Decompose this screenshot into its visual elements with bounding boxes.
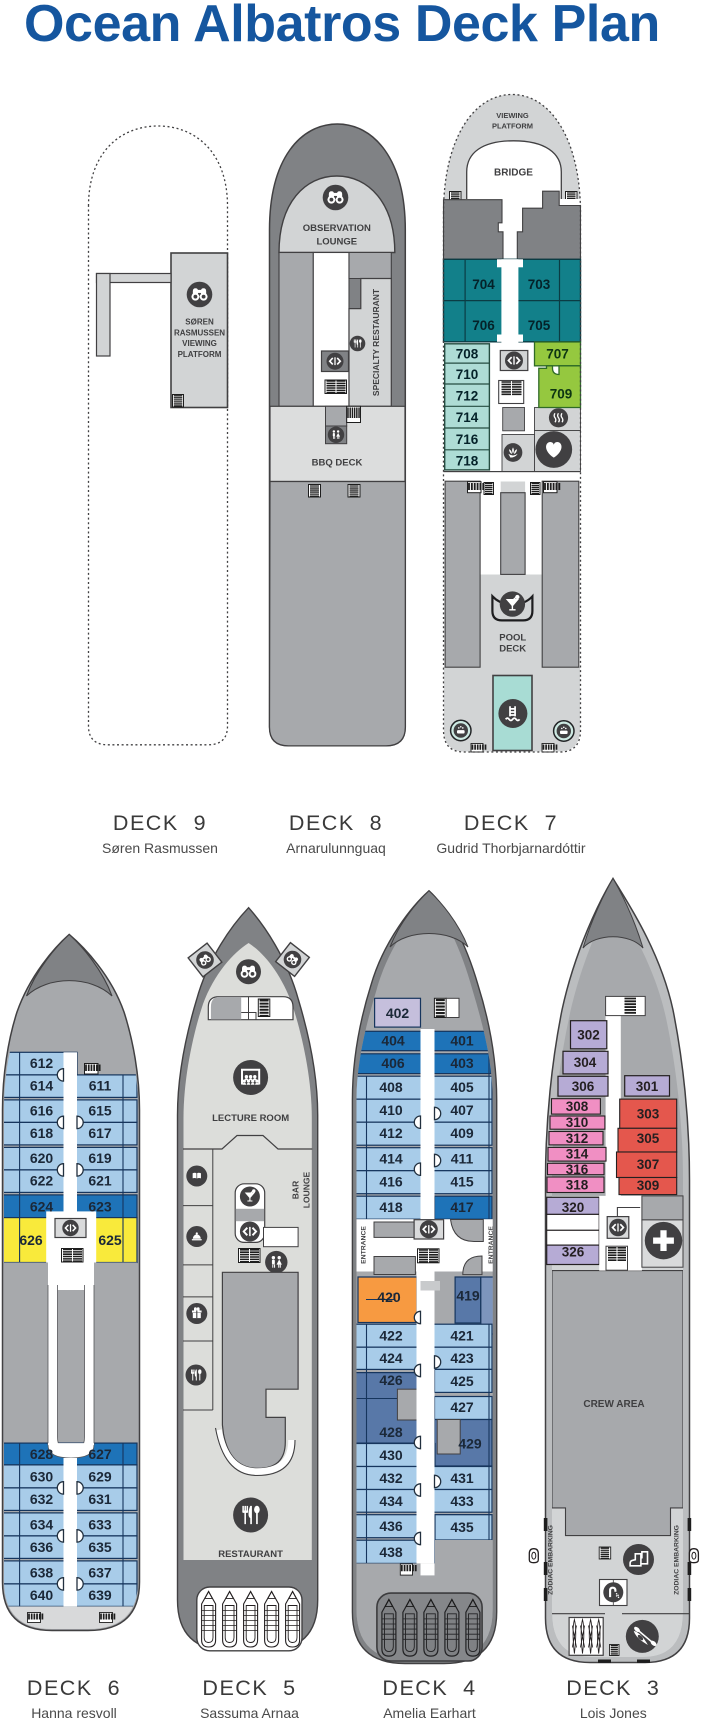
svg-text:624: 624: [30, 1198, 54, 1214]
svg-text:420: 420: [377, 1289, 401, 1305]
svg-text:LOUNGE: LOUNGE: [302, 1171, 312, 1208]
svg-text:432: 432: [379, 1470, 403, 1486]
svg-text:DECK 4: DECK 4: [382, 1676, 476, 1700]
svg-text:629: 629: [88, 1468, 112, 1484]
svg-text:411: 411: [451, 1151, 474, 1167]
svg-text:427: 427: [450, 1399, 474, 1415]
svg-text:617: 617: [88, 1125, 112, 1141]
svg-text:703: 703: [528, 277, 551, 292]
svg-text:708: 708: [456, 347, 479, 362]
svg-text:429: 429: [458, 1436, 482, 1452]
svg-text:Søren Rasmussen: Søren Rasmussen: [102, 840, 218, 856]
svg-text:419: 419: [456, 1288, 480, 1304]
svg-text:426: 426: [379, 1372, 403, 1388]
svg-text:621: 621: [88, 1172, 112, 1188]
svg-text:705: 705: [528, 318, 551, 333]
svg-text:423: 423: [450, 1350, 474, 1366]
svg-text:631: 631: [88, 1491, 112, 1507]
svg-text:428: 428: [379, 1424, 403, 1440]
svg-text:316: 316: [566, 1162, 589, 1177]
svg-text:318: 318: [566, 1178, 589, 1193]
svg-text:425: 425: [450, 1373, 474, 1389]
svg-text:BRIDGE: BRIDGE: [494, 168, 533, 179]
svg-text:424: 424: [379, 1350, 403, 1366]
svg-text:309: 309: [637, 1178, 660, 1193]
svg-text:430: 430: [379, 1447, 403, 1463]
svg-text:ZODIAC EMBARKING: ZODIAC EMBARKING: [548, 1525, 555, 1595]
svg-text:402: 402: [386, 1005, 410, 1021]
svg-text:406: 406: [381, 1055, 405, 1071]
svg-text:Sassuma Arnaa: Sassuma Arnaa: [200, 1705, 299, 1721]
svg-text:434: 434: [379, 1493, 403, 1509]
svg-text:421: 421: [450, 1328, 474, 1344]
svg-text:Amelia Earhart: Amelia Earhart: [383, 1705, 476, 1721]
svg-text:616: 616: [30, 1102, 54, 1118]
svg-text:BBQ DECK: BBQ DECK: [312, 458, 363, 469]
svg-text:438: 438: [379, 1544, 403, 1560]
svg-text:DECK 5: DECK 5: [202, 1676, 296, 1700]
svg-text:716: 716: [456, 432, 479, 447]
svg-text:612: 612: [30, 1055, 54, 1071]
svg-text:435: 435: [450, 1519, 474, 1535]
svg-text:433: 433: [450, 1493, 474, 1509]
svg-text:618: 618: [30, 1125, 54, 1141]
svg-text:ENTRANCE: ENTRANCE: [361, 1226, 368, 1264]
svg-text:614: 614: [30, 1077, 54, 1093]
svg-text:Hanna resvoll: Hanna resvoll: [31, 1705, 117, 1721]
svg-text:Gudrid Thorbjarnardóttir: Gudrid Thorbjarnardóttir: [436, 840, 585, 856]
svg-text:DECK 3: DECK 3: [566, 1676, 660, 1700]
svg-text:611: 611: [89, 1077, 112, 1093]
svg-text:OBSERVATION: OBSERVATION: [303, 223, 371, 234]
svg-text:633: 633: [88, 1516, 112, 1532]
svg-text:ZODIAC EMBARKING: ZODIAC EMBARKING: [674, 1525, 681, 1595]
svg-text:DECK 9: DECK 9: [113, 811, 207, 835]
svg-text:410: 410: [379, 1102, 403, 1118]
svg-text:301: 301: [636, 1079, 659, 1094]
svg-text:POOL: POOL: [499, 633, 526, 644]
svg-text:707: 707: [546, 347, 569, 362]
svg-text:627: 627: [88, 1446, 112, 1462]
svg-text:SØREN: SØREN: [185, 318, 214, 327]
svg-text:314: 314: [566, 1147, 589, 1162]
svg-text:DECK 7: DECK 7: [464, 811, 558, 835]
svg-text:634: 634: [30, 1516, 54, 1532]
svg-text:308: 308: [566, 1099, 589, 1114]
svg-text:704: 704: [472, 277, 495, 292]
svg-text:VIEWING: VIEWING: [496, 111, 529, 120]
svg-text:625: 625: [98, 1232, 122, 1248]
svg-text:303: 303: [637, 1107, 660, 1122]
svg-text:638: 638: [30, 1564, 54, 1580]
svg-text:PLATFORM: PLATFORM: [492, 122, 533, 131]
svg-text:407: 407: [450, 1102, 474, 1118]
svg-text:417: 417: [450, 1199, 474, 1215]
svg-text:636: 636: [30, 1539, 54, 1555]
svg-text:403: 403: [450, 1055, 474, 1071]
svg-text:RESTAURANT: RESTAURANT: [218, 1549, 283, 1560]
svg-text:LECTURE ROOM: LECTURE ROOM: [212, 1113, 289, 1124]
svg-text:BAR: BAR: [291, 1181, 301, 1199]
svg-text:640: 640: [30, 1587, 54, 1603]
svg-text:632: 632: [30, 1491, 54, 1507]
svg-text:307: 307: [637, 1157, 660, 1172]
svg-text:408: 408: [379, 1079, 403, 1095]
svg-text:405: 405: [450, 1079, 474, 1095]
svg-text:302: 302: [577, 1028, 600, 1043]
svg-text:409: 409: [450, 1125, 474, 1141]
svg-text:706: 706: [472, 318, 495, 333]
svg-text:712: 712: [456, 389, 479, 404]
svg-text:326: 326: [562, 1245, 585, 1260]
svg-text:639: 639: [88, 1587, 112, 1603]
svg-text:619: 619: [88, 1150, 112, 1166]
svg-text:718: 718: [456, 454, 479, 469]
svg-text:714: 714: [456, 410, 479, 425]
svg-text:630: 630: [30, 1468, 54, 1484]
svg-text:DECK: DECK: [499, 644, 526, 655]
svg-text:DECK 6: DECK 6: [27, 1676, 121, 1700]
svg-text:418: 418: [379, 1199, 403, 1215]
svg-text:416: 416: [379, 1174, 403, 1190]
svg-text:637: 637: [88, 1564, 112, 1580]
svg-text:635: 635: [88, 1539, 112, 1555]
svg-text:320: 320: [562, 1200, 585, 1215]
svg-text:709: 709: [550, 387, 573, 402]
svg-text:VIEWING: VIEWING: [182, 339, 217, 348]
svg-text:DECK 8: DECK 8: [289, 811, 383, 835]
svg-text:PLATFORM: PLATFORM: [178, 350, 222, 359]
svg-text:626: 626: [19, 1232, 43, 1248]
svg-text:422: 422: [379, 1328, 403, 1344]
svg-text:SPECIALTY RESTAURANT: SPECIALTY RESTAURANT: [371, 288, 381, 396]
svg-text:615: 615: [88, 1102, 112, 1118]
svg-text:LOUNGE: LOUNGE: [316, 237, 357, 248]
svg-text:304: 304: [574, 1055, 597, 1070]
svg-text:623: 623: [88, 1198, 112, 1214]
svg-text:Arnarulunnguaq: Arnarulunnguaq: [286, 840, 386, 856]
svg-text:710: 710: [456, 367, 479, 382]
svg-text:415: 415: [450, 1174, 474, 1190]
svg-text:436: 436: [379, 1518, 403, 1534]
svg-text:620: 620: [30, 1150, 54, 1166]
svg-text:431: 431: [450, 1470, 474, 1486]
svg-text:412: 412: [379, 1125, 403, 1141]
svg-text:310: 310: [566, 1115, 589, 1130]
svg-text:306: 306: [572, 1079, 595, 1094]
svg-text:622: 622: [30, 1172, 54, 1188]
svg-text:312: 312: [566, 1131, 589, 1146]
svg-text:628: 628: [30, 1446, 54, 1462]
svg-text:404: 404: [381, 1033, 405, 1049]
svg-text:305: 305: [637, 1131, 660, 1146]
svg-text:Lois Jones: Lois Jones: [580, 1705, 647, 1721]
svg-text:RASMUSSEN: RASMUSSEN: [174, 329, 225, 338]
svg-text:CREW AREA: CREW AREA: [583, 1399, 644, 1410]
svg-text:414: 414: [379, 1151, 403, 1167]
svg-text:401: 401: [450, 1033, 474, 1049]
